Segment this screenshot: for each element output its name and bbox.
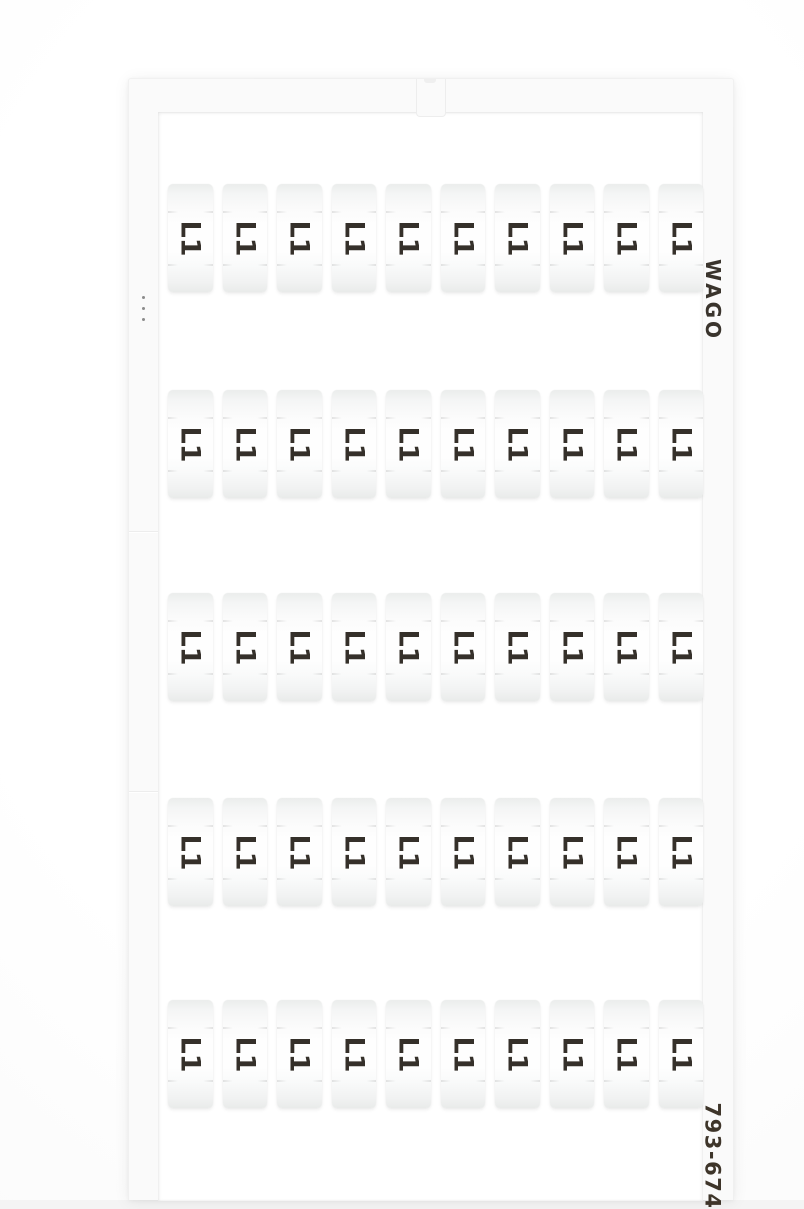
marker-tag: L1 [659, 390, 704, 498]
marker-tag: L1 [441, 798, 486, 906]
marker-tag: L1 [332, 390, 377, 498]
marker-tag: L1 [495, 798, 540, 906]
marker-tag: L1 [168, 593, 213, 701]
part-number-label: 793-674 [700, 1103, 724, 1209]
marker-tag: L1 [168, 1000, 213, 1108]
marker-tag-label: L1 [231, 629, 258, 665]
marker-tag: L1 [277, 1000, 322, 1108]
marker-tag-label: L1 [667, 834, 694, 870]
marker-tag-label: L1 [504, 426, 531, 462]
marker-tag: L1 [550, 593, 595, 701]
marker-tag-label: L1 [231, 1036, 258, 1072]
marker-tag: L1 [659, 1000, 704, 1108]
marker-tag: L1 [550, 798, 595, 906]
marker-tag-label: L1 [177, 426, 204, 462]
marker-tag-label: L1 [558, 426, 585, 462]
marker-tag-label: L1 [286, 1036, 313, 1072]
marker-tag-label: L1 [613, 629, 640, 665]
brand-label: WAGO [701, 259, 725, 341]
marker-tag-label: L1 [177, 1036, 204, 1072]
marker-tag-label: L1 [231, 220, 258, 256]
marker-tag-label: L1 [449, 1036, 476, 1072]
marker-tag: L1 [550, 390, 595, 498]
marker-tag: L1 [223, 593, 268, 701]
left-rail-crease [129, 531, 158, 532]
marker-tag-label: L1 [340, 629, 367, 665]
marker-tag-label: L1 [449, 220, 476, 256]
marker-tag: L1 [168, 798, 213, 906]
marker-row: L1L1L1L1L1L1L1L1L1L1 [168, 184, 703, 292]
marker-tag: L1 [386, 1000, 431, 1108]
marker-tag: L1 [277, 390, 322, 498]
marker-tag-label: L1 [504, 220, 531, 256]
marker-tag-label: L1 [340, 220, 367, 256]
marker-tag-label: L1 [231, 834, 258, 870]
card-seam-notch [424, 79, 436, 83]
marker-tag-label: L1 [613, 1036, 640, 1072]
marker-tag: L1 [332, 1000, 377, 1108]
marker-tag-label: L1 [504, 629, 531, 665]
marker-tag: L1 [659, 798, 704, 906]
marker-tag-label: L1 [177, 629, 204, 665]
marker-tag-label: L1 [667, 1036, 694, 1072]
marker-tag-label: L1 [340, 1036, 367, 1072]
marker-tag: L1 [495, 593, 540, 701]
marker-tag-label: L1 [177, 834, 204, 870]
marker-tag-label: L1 [231, 426, 258, 462]
marker-tag: L1 [277, 798, 322, 906]
marker-tag-label: L1 [558, 220, 585, 256]
marker-tag-label: L1 [613, 426, 640, 462]
marker-tag: L1 [659, 184, 704, 292]
marker-tag: L1 [168, 390, 213, 498]
marker-tag-label: L1 [395, 834, 422, 870]
marker-tag: L1 [604, 390, 649, 498]
marker-tag: L1 [223, 798, 268, 906]
marker-tag-label: L1 [504, 834, 531, 870]
marker-tag: L1 [332, 593, 377, 701]
marker-tag: L1 [495, 1000, 540, 1108]
marker-tag: L1 [604, 1000, 649, 1108]
marker-tag: L1 [277, 184, 322, 292]
marker-tag-label: L1 [286, 629, 313, 665]
photo-background: WAGO 793-674 L1L1L1L1L1L1L1L1L1L1L1L1L1L… [0, 0, 804, 1200]
marker-row: L1L1L1L1L1L1L1L1L1L1 [168, 798, 703, 906]
marker-tag: L1 [386, 798, 431, 906]
marker-tag-label: L1 [395, 426, 422, 462]
marker-tag-label: L1 [395, 629, 422, 665]
marker-tag-label: L1 [395, 1036, 422, 1072]
marker-tag-label: L1 [667, 629, 694, 665]
marker-tag-label: L1 [613, 220, 640, 256]
marker-tag: L1 [441, 184, 486, 292]
marker-tag: L1 [441, 1000, 486, 1108]
marker-tag-label: L1 [340, 426, 367, 462]
marker-tag: L1 [604, 798, 649, 906]
marker-tag-label: L1 [340, 834, 367, 870]
marker-row: L1L1L1L1L1L1L1L1L1L1 [168, 390, 703, 498]
marker-tag: L1 [223, 390, 268, 498]
marker-tag: L1 [332, 184, 377, 292]
marker-tag: L1 [604, 593, 649, 701]
marker-tag-label: L1 [395, 220, 422, 256]
marker-tag: L1 [441, 593, 486, 701]
marker-tag-label: L1 [449, 834, 476, 870]
marker-tag: L1 [223, 1000, 268, 1108]
marker-tag: L1 [386, 184, 431, 292]
marker-tag-label: L1 [177, 220, 204, 256]
marker-tag: L1 [604, 184, 649, 292]
marker-tag: L1 [659, 593, 704, 701]
marker-tag: L1 [550, 1000, 595, 1108]
marker-tag: L1 [277, 593, 322, 701]
marker-tag-label: L1 [558, 834, 585, 870]
part-number-print: 793-674 [689, 1106, 735, 1206]
marker-tag-label: L1 [286, 220, 313, 256]
marker-tag: L1 [168, 184, 213, 292]
left-rail-crease [129, 791, 158, 792]
marker-tag-label: L1 [449, 629, 476, 665]
marker-tag: L1 [386, 390, 431, 498]
marker-tag-label: L1 [558, 629, 585, 665]
marker-row: L1L1L1L1L1L1L1L1L1L1 [168, 1000, 703, 1108]
marker-tag-label: L1 [667, 220, 694, 256]
marker-tag-label: L1 [558, 1036, 585, 1072]
marker-tag-label: L1 [286, 426, 313, 462]
marker-tag-label: L1 [449, 426, 476, 462]
marker-tag: L1 [386, 593, 431, 701]
marker-tag-label: L1 [613, 834, 640, 870]
marker-tag: L1 [332, 798, 377, 906]
marker-tag: L1 [550, 184, 595, 292]
molding-dots-icon [136, 296, 150, 329]
marker-tag: L1 [223, 184, 268, 292]
marker-tag-label: L1 [667, 426, 694, 462]
marker-row: L1L1L1L1L1L1L1L1L1L1 [168, 593, 703, 701]
marker-tag-label: L1 [286, 834, 313, 870]
marker-card: WAGO 793-674 L1L1L1L1L1L1L1L1L1L1L1L1L1L… [128, 78, 734, 1200]
marker-tag: L1 [495, 184, 540, 292]
marker-tag: L1 [495, 390, 540, 498]
marker-tag-label: L1 [504, 1036, 531, 1072]
marker-tag: L1 [441, 390, 486, 498]
card-seam-tab [416, 79, 446, 117]
